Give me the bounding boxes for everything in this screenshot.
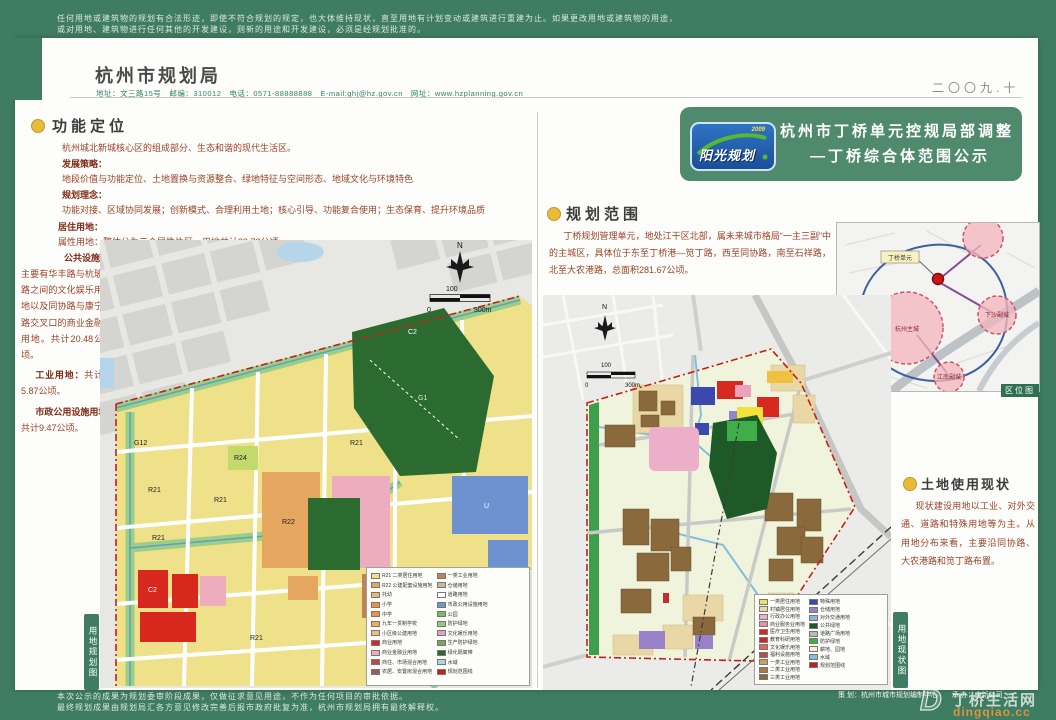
svg-text:江南副城: 江南副城 — [937, 373, 961, 381]
legend-label: 中学 — [382, 611, 392, 618]
bureau-name: 杭州市规划局 — [95, 62, 221, 88]
section-bullet-icon — [31, 119, 45, 133]
watermark-logo: D — [920, 684, 942, 718]
notice-title-banner: 2009 阳光规划 杭州市丁桥单元控规局部调整 —丁桥综合体范围公示 — [680, 107, 1022, 181]
legend-label: 道路用地 — [448, 591, 468, 598]
svg-text:丁桥单元: 丁桥单元 — [888, 254, 912, 262]
legend-label: 一类工业用地 — [448, 572, 478, 579]
legend-item: 市政公用设施用地 — [437, 600, 488, 610]
legend-label: 文化娱乐用地 — [770, 644, 800, 651]
legend-swatch — [809, 662, 818, 668]
svg-text:U: U — [484, 503, 489, 510]
legend-item: 文化娱乐用地 — [437, 629, 488, 639]
north-label: N — [602, 304, 607, 311]
legend-label: 生产防护绿地 — [448, 639, 478, 646]
legend-item: 规划范围线 — [809, 661, 850, 669]
legend-item: 道路用地 — [437, 590, 488, 600]
locator-tag: 区位图 — [1001, 384, 1039, 397]
legend-swatch — [437, 573, 446, 579]
legend-swatch — [759, 629, 768, 635]
scope-section-title: 规划范围 — [566, 203, 642, 224]
legend-label: 商业服务业用地 — [770, 621, 805, 628]
concept-text: 功能对接、区域协同发展；创新模式、合理利用土地；核心引导、功能复合使用；生态保育… — [62, 202, 524, 218]
legend-item: 二类工业用地 — [759, 666, 805, 674]
parcel-pink-small — [735, 385, 751, 397]
legend-item: 特殊用地 — [809, 598, 850, 606]
legend-label: R21 二类居住用地 — [382, 572, 423, 579]
legend-column-1: 一类居住用地村镇居住用地行政办公用地商业服务业用地医疗卫生用地教育科研用地文化娱… — [759, 598, 805, 681]
legend-swatch — [371, 650, 380, 656]
legend-label: 二类工业用地 — [770, 666, 800, 673]
legend-label: 耕地、园地 — [820, 646, 845, 653]
legend-swatch — [759, 637, 768, 643]
header-divider — [70, 97, 1022, 98]
municipal-text: 共计9.47公顷。 — [21, 423, 84, 433]
legend-swatch — [759, 659, 768, 665]
legend-swatch — [809, 638, 818, 644]
legend-swatch — [371, 611, 380, 617]
status-map-legend: 一类居住用地村镇居住用地行政办公用地商业服务业用地医疗卫生用地教育科研用地文化娱… — [754, 594, 888, 685]
concept-label: 规划理念： — [62, 188, 107, 201]
legend-item: 防护绿地 — [809, 637, 850, 645]
legend-item: 行政办公用地 — [759, 613, 805, 621]
legend-label: 三类工业用地 — [770, 674, 800, 681]
legend-label: 水域 — [820, 654, 830, 661]
legend-label: 公共绿地 — [820, 622, 840, 629]
svg-text:C2: C2 — [148, 587, 157, 594]
legend-item: 耕地、园地 — [809, 645, 850, 653]
zoning-plan-map: N 100 0 300m R21 R21 R21 R21 R21 R22 C2 … — [100, 240, 532, 688]
legend-label: 特殊用地 — [820, 598, 840, 605]
strategy-text: 地段价值与功能定位、土地置换与资源整合、绿地特征与空间形态、地域文化与环境特色 — [62, 171, 524, 187]
legend-swatch — [371, 669, 380, 675]
legend-swatch — [759, 599, 768, 605]
legend-item: 仓储用地 — [809, 606, 850, 614]
function-section-title: 功能定位 — [52, 115, 128, 136]
legend-label: 小区级公建用地 — [382, 630, 417, 637]
legend-label: 水域 — [448, 659, 458, 666]
legend-item: 文化娱乐用地 — [759, 643, 805, 651]
legend-label: 仓储用地 — [448, 582, 468, 589]
dingqiao-location-dot — [933, 274, 944, 285]
legend-swatch — [371, 582, 380, 588]
legend-swatch — [759, 667, 768, 673]
legend-swatch — [809, 623, 818, 629]
svg-text:R22: R22 — [282, 519, 295, 526]
legend-item: 仓储用地 — [437, 581, 488, 591]
legend-item: 水域 — [809, 653, 850, 661]
legend-swatch — [371, 621, 380, 627]
legend-label: 绿化隔离带 — [448, 649, 473, 656]
legend-label: 规划范围线 — [820, 662, 845, 669]
legend-item: R21 二类居住用地 — [371, 571, 433, 581]
legend-swatch — [371, 640, 380, 646]
residential-label: 居住用地： — [58, 220, 103, 233]
left-side-notes: 主要有华丰路与杭玻路之间的文化娱乐用地以及同协路与康宁路交叉口的商业金融用地。共… — [21, 266, 103, 440]
legend-label: 文化娱乐用地 — [448, 630, 478, 637]
legend-label: 托幼 — [382, 591, 392, 598]
legend-swatch — [437, 621, 446, 627]
legend-label: R22 公建配套设施用地 — [382, 582, 433, 589]
legend-label: 商业金融业用地 — [382, 649, 417, 656]
zoning-map-legend: R21 二类居住用地R22 公建配套设施用地托幼小学中学九年一贯制学校小区级公建… — [366, 567, 530, 686]
svg-text:R21: R21 — [152, 535, 165, 542]
notice-title-line1: 杭州市丁桥单元控规局部调整 — [780, 120, 1014, 141]
scope-text: 丁桥规划管理单元，地处江干区北部，属未来城市格局“一主三副”中的主城区，具体位于… — [549, 228, 831, 279]
border-patch — [0, 38, 42, 100]
svg-text:R21: R21 — [214, 497, 227, 504]
legend-item: 商业金融业用地 — [371, 648, 433, 658]
legend-item: 一类工业用地 — [437, 571, 488, 581]
legend-label: 农居、安置房混合用地 — [382, 668, 432, 675]
legend-item: 小学 — [371, 600, 433, 610]
legend-swatch — [371, 592, 380, 598]
legend-label: 一类居住用地 — [770, 598, 800, 605]
legend-item: 村镇居住用地 — [759, 606, 805, 614]
legend-item: 小区级公建用地 — [371, 629, 433, 639]
legend-swatch — [809, 615, 818, 621]
logo-name: 阳光规划 — [699, 145, 755, 164]
panel-divider — [537, 112, 538, 688]
legend-label: 教育科研用地 — [770, 636, 800, 643]
legend-swatch — [371, 602, 380, 608]
legend-item: 福利设施用地 — [759, 651, 805, 659]
legend-label: 市政公用设施用地 — [448, 601, 488, 608]
legend-swatch — [437, 582, 446, 588]
function-intro: 杭州城北新城核心区的组成部分、生态和谐的现代生活区。 — [62, 140, 502, 156]
legend-label: 道路广场用地 — [820, 630, 850, 637]
legend-swatch — [809, 646, 818, 652]
legend-label: 防护绿地 — [448, 620, 468, 627]
parcel-municipal-blue — [452, 476, 528, 534]
legend-swatch — [371, 573, 380, 579]
scale-end-label: 300m — [474, 307, 492, 314]
legend-item: 商住、市场混合用地 — [371, 657, 433, 667]
status-text: 现状建设用地以工业、对外交通、道路和特殊用地等为主。从用地分布来看，主要沿同协路… — [901, 497, 1035, 571]
legend-column-1: R21 二类居住用地R22 公建配套设施用地托幼小学中学九年一贯制学校小区级公建… — [371, 571, 433, 682]
svg-text:R21: R21 — [350, 440, 363, 447]
legend-label: 一类工业用地 — [770, 659, 800, 666]
legend-item: 道路广场用地 — [809, 630, 850, 638]
legend-swatch — [437, 669, 446, 675]
status-section-title: 土地使用现状 — [921, 474, 1011, 493]
industry-note: 工业用地：共计5.87公顷。 — [21, 367, 103, 399]
svg-text:G12: G12 — [134, 440, 147, 447]
legend-label: 防护绿地 — [820, 638, 840, 645]
legend-item: 农居、安置房混合用地 — [371, 667, 433, 677]
legend-swatch — [759, 621, 768, 627]
top-disclaimer-line1: 任何用地或建筑物的规划有合法形迹，即使不符合规划的规定，也大体维持现状，直至用地… — [57, 13, 678, 24]
svg-text:C2: C2 — [408, 329, 417, 336]
watermark-domain: dingqiao.cc — [953, 705, 1031, 719]
legend-item: 公园 — [437, 609, 488, 619]
strategy-label: 发展策略： — [62, 157, 107, 170]
legend-label: 商住、市场混合用地 — [382, 659, 427, 666]
legend-label: 九年一贯制学校 — [382, 620, 417, 627]
legend-label: 村镇居住用地 — [770, 606, 800, 613]
legend-column-2: 特殊用地仓储用地对外交通用地公共绿地道路广场用地防护绿地耕地、园地水域规划范围线 — [809, 598, 850, 681]
legend-column-2: 一类工业用地仓储用地道路用地市政公用设施用地公园防护绿地文化娱乐用地生产防护绿地… — [437, 571, 488, 682]
legend-swatch — [371, 659, 380, 665]
legend-item: 一类工业用地 — [759, 658, 805, 666]
legend-item: 生产防护绿地 — [437, 638, 488, 648]
legend-item: 一类居住用地 — [759, 598, 805, 606]
legend-label: 小学 — [382, 601, 392, 608]
parcel-blue — [691, 387, 715, 405]
svg-text:R21: R21 — [148, 487, 161, 494]
parcel-pink-large — [649, 427, 699, 471]
landuse-status-map: N 100 0 300m 一类居住用地村镇居住用地行政办公用地商业服务业用地医疗… — [543, 295, 891, 690]
legend-item: 中学 — [371, 609, 433, 619]
issue-date: 二〇〇九.十 — [932, 79, 1019, 96]
svg-text:下沙副城: 下沙副城 — [985, 311, 1009, 319]
svg-text:R21: R21 — [250, 635, 263, 642]
section-bullet-icon — [903, 477, 917, 491]
scale-mid-label: 100 — [601, 363, 612, 369]
legend-swatch — [759, 644, 768, 650]
legend-swatch — [759, 674, 768, 680]
top-disclaimer-line2: 或对用地、建筑物进行任何其他的开发建设，则新的用途和开发建设，必须是经规划批准的… — [57, 24, 426, 35]
legend-item: R22 公建配套设施用地 — [371, 581, 433, 591]
legend-item: 商业服务业用地 — [759, 621, 805, 629]
legend-label: 商业用地 — [382, 639, 402, 646]
svg-text:R24: R24 — [234, 455, 247, 462]
legend-item: 防护绿地 — [437, 619, 488, 629]
legend-label: 行政办公用地 — [770, 613, 800, 620]
legend-item: 对外交通用地 — [809, 614, 850, 622]
legend-item: 托幼 — [371, 590, 433, 600]
section-bullet-icon — [547, 207, 561, 221]
legend-swatch — [809, 631, 818, 637]
scale-end-label: 300m — [625, 383, 640, 389]
west-green-strip — [589, 402, 599, 655]
legend-item: 九年一贯制学校 — [371, 619, 433, 629]
svg-text:杭州主城: 杭州主城 — [895, 325, 919, 333]
legend-swatch — [437, 640, 446, 646]
legend-swatch — [437, 630, 446, 636]
legend-swatch — [437, 602, 446, 608]
legend-label: 福利设施用地 — [770, 651, 800, 658]
north-label: N — [457, 241, 463, 250]
legend-item: 医疗卫生用地 — [759, 628, 805, 636]
public-facility-text: 主要有华丰路与杭玻路之间的文化娱乐用地以及同协路与康宁路交叉口的商业金融用地。共… — [21, 266, 103, 363]
footer-disclaimer-line2: 最终规划成果由规划局汇各方意见修改完善后报市政府批复为准，杭州市规划局拥有最终解… — [57, 702, 444, 713]
right-map-tab: 用地现状图 — [893, 612, 908, 688]
legend-item: 绿化隔离带 — [437, 648, 488, 658]
footer-disclaimer-line1: 本次公示的成果为规划委审阶段成果，仅做征求意见用途，不作为任何项目的审批依据。 — [57, 691, 408, 702]
legend-swatch — [759, 652, 768, 658]
legend-item: 商业用地 — [371, 638, 433, 648]
legend-swatch — [759, 606, 768, 612]
notice-title-line2: —丁桥综合体范围公示 — [810, 145, 990, 166]
legend-swatch — [371, 630, 380, 636]
svg-text:G1: G1 — [418, 395, 427, 402]
legend-label: 规划范围线 — [448, 668, 473, 675]
legend-item: 规划范围线 — [437, 667, 488, 677]
logo-year: 2009 — [752, 127, 765, 133]
legend-swatch — [437, 611, 446, 617]
status-green-parcel — [727, 421, 757, 441]
legend-swatch — [809, 607, 818, 613]
left-map-tab: 用地规划图 — [84, 614, 99, 690]
legend-label: 医疗卫生用地 — [770, 628, 800, 635]
sunshine-planning-logo: 2009 阳光规划 — [690, 122, 776, 171]
legend-item: 教育科研用地 — [759, 636, 805, 644]
legend-item: 公共绿地 — [809, 622, 850, 630]
legend-swatch — [809, 599, 818, 605]
legend-label: 仓储用地 — [820, 606, 840, 613]
legend-label: 对外交通用地 — [820, 614, 850, 621]
legend-swatch — [437, 659, 446, 665]
legend-item: 水域 — [437, 657, 488, 667]
scale-mid-label: 100 — [446, 286, 458, 293]
legend-swatch — [437, 592, 446, 598]
municipal-note: 市政公用设施用地：共计9.47公顷。 — [21, 404, 103, 436]
industry-label: 工业用地： — [35, 370, 84, 380]
legend-swatch — [809, 654, 818, 660]
legend-swatch — [759, 614, 768, 620]
legend-item: 三类工业用地 — [759, 673, 805, 681]
legend-swatch — [437, 650, 446, 656]
scale-zero-label: 0 — [427, 307, 431, 314]
legend-label: 公园 — [448, 611, 458, 618]
pond-water — [276, 242, 324, 262]
